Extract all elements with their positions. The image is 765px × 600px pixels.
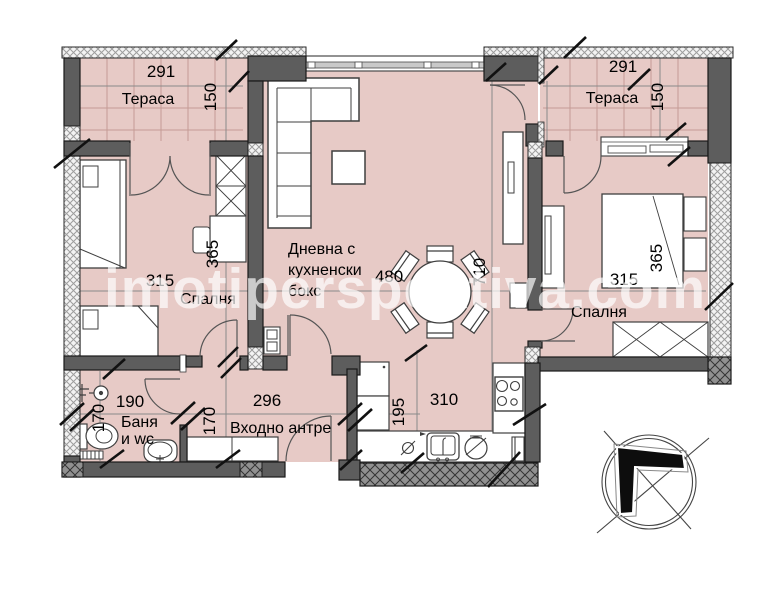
svg-text:310: 310 [430, 390, 458, 409]
svg-text:291: 291 [147, 62, 175, 81]
svg-text:170: 170 [200, 407, 219, 435]
svg-text:Тераса: Тераса [586, 90, 639, 107]
svg-text:190: 190 [116, 392, 144, 411]
svg-text:imotiperspektiva.com: imotiperspektiva.com [104, 257, 706, 321]
svg-text:Входно антре: Входно антре [230, 420, 331, 437]
svg-text:150: 150 [648, 83, 667, 111]
svg-text:291: 291 [609, 57, 637, 76]
svg-text:и wc: и wc [121, 431, 154, 448]
svg-text:170: 170 [89, 404, 108, 432]
svg-text:Тераса: Тераса [122, 91, 175, 108]
svg-text:Дневна с: Дневна с [288, 241, 355, 258]
svg-text:296: 296 [253, 391, 281, 410]
svg-text:195: 195 [389, 398, 408, 426]
svg-text:Баня: Баня [121, 414, 158, 431]
svg-text:150: 150 [201, 83, 220, 111]
